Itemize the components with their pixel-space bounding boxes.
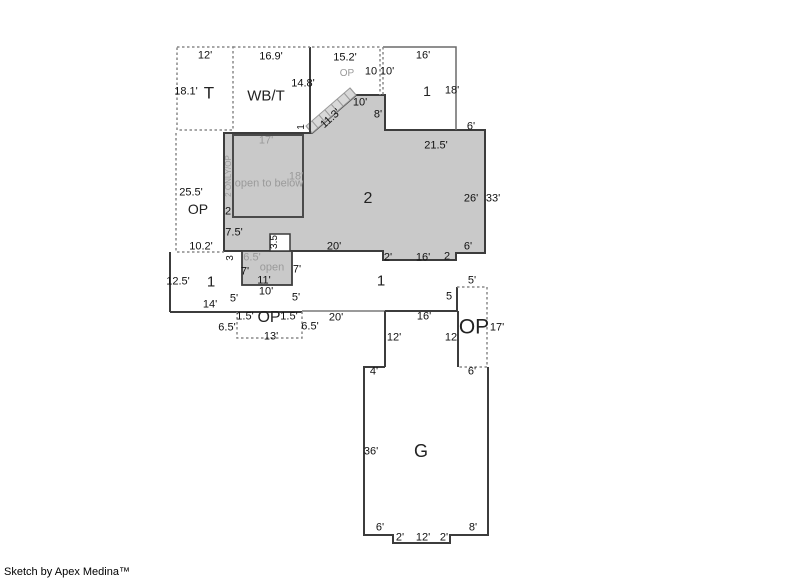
dimension-label: 5' bbox=[230, 294, 238, 305]
room-label: OP bbox=[459, 317, 489, 338]
dimension-label: 16' bbox=[416, 51, 430, 62]
dimension-label: 6.5' bbox=[218, 323, 235, 334]
room-label: 2 bbox=[364, 191, 373, 207]
room-label: 1 bbox=[377, 274, 385, 289]
room-label: OP bbox=[257, 310, 280, 326]
dimension-label: 14.8' bbox=[291, 79, 315, 90]
note-label: 2 ONLY/OP bbox=[225, 155, 233, 197]
dimension-label: 2' bbox=[440, 533, 448, 544]
dimension-label: 2' bbox=[396, 533, 404, 544]
dimension-label: 11.3' bbox=[319, 107, 343, 130]
dimension-label: 16' bbox=[416, 253, 430, 264]
note-label: 6.5' bbox=[243, 253, 260, 264]
dimension-label: 2' bbox=[384, 253, 392, 264]
dimension-label: 12.5' bbox=[166, 277, 190, 288]
dimension-label: 12' bbox=[198, 51, 212, 62]
room-label: OP bbox=[188, 202, 208, 216]
dimension-label: 16' bbox=[417, 312, 431, 323]
dimension-label: 1.5' bbox=[280, 312, 297, 323]
dimension-label: 25.5' bbox=[179, 188, 203, 199]
dimension-label: 6' bbox=[468, 367, 476, 378]
dimension-label: 6' bbox=[376, 523, 384, 534]
dimension-label: 7' bbox=[293, 265, 301, 276]
room-label: G bbox=[414, 442, 428, 460]
dimension-label: 1 bbox=[297, 124, 307, 130]
dimension-label: 12' bbox=[416, 533, 430, 544]
dimension-label: 10' bbox=[353, 98, 367, 109]
dimension-label: 1.5' bbox=[236, 312, 253, 323]
note-label: OP bbox=[340, 69, 354, 79]
dimension-label: 8' bbox=[469, 523, 477, 534]
dimension-label: 10 bbox=[365, 67, 377, 78]
room-label: 1 bbox=[423, 84, 431, 98]
dimension-label: 20' bbox=[329, 313, 343, 324]
dimension-label: 5' bbox=[292, 293, 300, 304]
dimension-label: 2 bbox=[444, 252, 450, 263]
label-layer: 12'18.1'16.9'14.8'15.2'1010'16'18'6'10'8… bbox=[0, 0, 800, 587]
dimension-label: 5' bbox=[468, 276, 476, 287]
room-label: 1 bbox=[207, 275, 215, 290]
dimension-label: 12 bbox=[445, 333, 457, 344]
note-label: 17' bbox=[259, 136, 273, 147]
dimension-label: 16.9' bbox=[259, 52, 283, 63]
dimension-label: 6' bbox=[467, 122, 475, 133]
dimension-label: 7' bbox=[241, 267, 249, 278]
dimension-label: 7.5' bbox=[225, 228, 242, 239]
room-label: WB/T bbox=[247, 89, 285, 104]
dimension-label: 2 bbox=[225, 207, 231, 218]
dimension-label: 18.1' bbox=[174, 87, 198, 98]
dimension-label: 26' bbox=[464, 194, 478, 205]
dimension-label: 14' bbox=[203, 300, 217, 311]
dimension-label: 33' bbox=[486, 194, 500, 205]
note-label: open to below bbox=[235, 179, 304, 190]
dimension-label: 10' bbox=[259, 287, 273, 298]
dimension-label: 3.5 bbox=[270, 235, 280, 249]
dimension-label: 10' bbox=[380, 67, 394, 78]
floor-plan-sketch: 12'18.1'16.9'14.8'15.2'1010'16'18'6'10'8… bbox=[0, 0, 800, 587]
dimension-label: 6.5' bbox=[301, 322, 318, 333]
dimension-label: 12' bbox=[387, 333, 401, 344]
dimension-label: 4' bbox=[370, 367, 378, 378]
dimension-label: 5 bbox=[446, 292, 452, 303]
credit-text: Sketch by Apex Medina™ bbox=[4, 566, 130, 578]
note-label: open bbox=[260, 263, 284, 274]
room-label: T bbox=[204, 85, 214, 102]
dimension-label: 8' bbox=[374, 110, 382, 121]
dimension-label: 3 bbox=[226, 255, 236, 261]
dimension-label: 10.2' bbox=[189, 242, 213, 253]
dimension-label: 36' bbox=[364, 447, 378, 458]
dimension-label: 18' bbox=[445, 86, 459, 97]
dimension-label: 20' bbox=[327, 242, 341, 253]
dimension-label: 21.5' bbox=[424, 141, 448, 152]
dimension-label: 15.2' bbox=[333, 53, 357, 64]
dimension-label: 17' bbox=[490, 323, 504, 334]
dimension-label: 13' bbox=[264, 332, 278, 343]
dimension-label: 6' bbox=[464, 242, 472, 253]
